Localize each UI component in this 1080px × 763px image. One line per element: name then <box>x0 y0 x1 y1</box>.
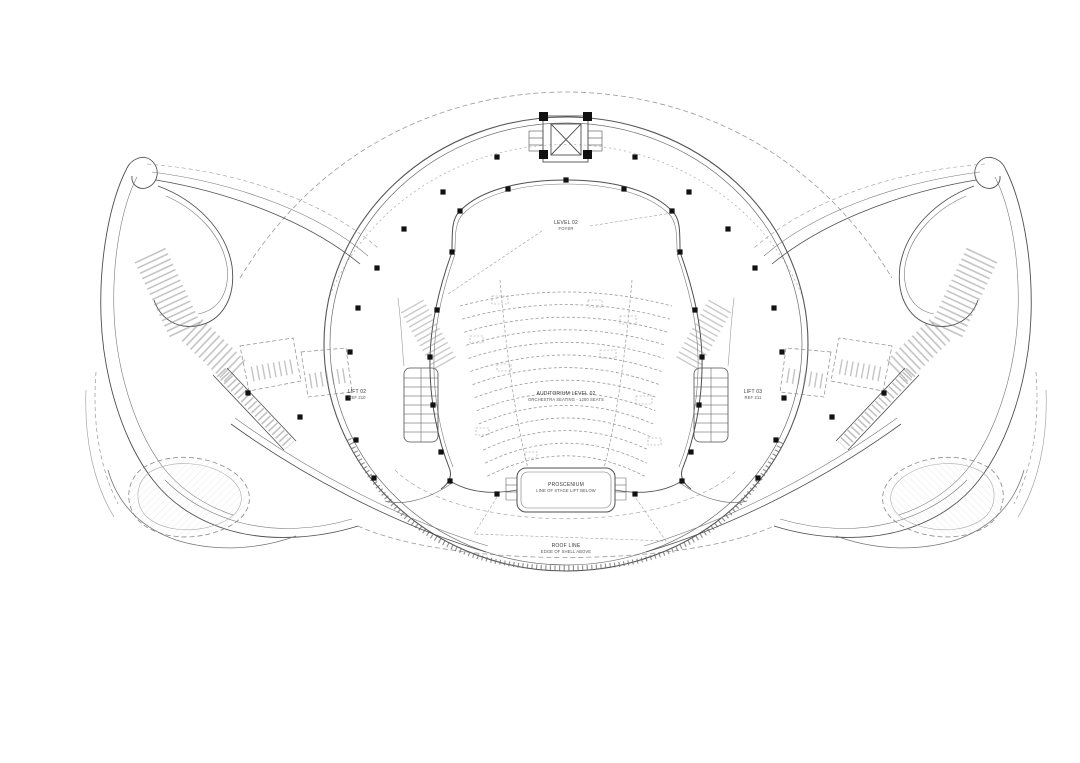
seat-row <box>483 431 649 451</box>
seating-step-box <box>525 452 537 458</box>
column-marker <box>347 349 352 354</box>
left-wing <box>86 157 517 552</box>
seat-row <box>468 342 663 358</box>
seating-step-box <box>476 428 489 435</box>
column-marker <box>494 491 499 496</box>
column-marker <box>621 186 626 191</box>
column-marker <box>755 475 760 480</box>
svg-text:ORCHESTRA SEATING - 1200 SEATS: ORCHESTRA SEATING - 1200 SEATS <box>528 397 604 402</box>
column-marker <box>679 478 684 483</box>
seating-step-box <box>636 396 652 404</box>
seat-row <box>466 330 665 346</box>
seating-step-box <box>492 296 508 304</box>
wing-stair-2 <box>192 330 236 372</box>
column-marker <box>355 305 360 310</box>
column-marker <box>669 208 674 213</box>
column-markers <box>245 154 886 496</box>
shaft-column-markers <box>539 112 592 159</box>
column-marker <box>699 354 704 359</box>
column-marker <box>440 189 445 194</box>
terrace-blob <box>108 457 296 548</box>
elevator-shaft <box>529 112 602 162</box>
seat-row <box>487 456 644 477</box>
column-marker <box>297 414 302 419</box>
seat-row <box>473 368 660 385</box>
seat-row <box>485 443 647 463</box>
column-marker <box>427 354 432 359</box>
column-marker <box>773 437 778 442</box>
seating-step-boxes <box>470 296 661 458</box>
svg-text:EDGE OF SHELL ABOVE: EDGE OF SHELL ABOVE <box>541 549 591 554</box>
column-marker <box>632 491 637 496</box>
auditorium-seating-rows <box>460 292 672 476</box>
column-marker <box>374 265 379 270</box>
auditorium-walls <box>452 180 680 252</box>
seat-row <box>462 305 670 320</box>
column-marker <box>457 208 462 213</box>
column-marker <box>686 189 691 194</box>
svg-text:FOYER: FOYER <box>559 226 574 231</box>
svg-text:LINE OF STAGE LIFT BELOW: LINE OF STAGE LIFT BELOW <box>536 488 596 493</box>
column-marker <box>434 307 439 312</box>
side-stair-box <box>398 298 446 442</box>
floor-plan-canvas: LEVEL 02 FOYER AUDITORIUM LEVEL 02 ORCHE… <box>0 0 1080 763</box>
column-marker <box>371 475 376 480</box>
column-marker <box>779 349 784 354</box>
column-marker <box>430 402 435 407</box>
column-marker <box>692 307 697 312</box>
wing-stair-1 <box>150 255 186 332</box>
column-marker <box>563 177 568 182</box>
seat-row <box>479 405 653 424</box>
column-marker <box>677 249 682 254</box>
column-marker <box>447 478 452 483</box>
column-marker <box>752 265 757 270</box>
column-marker <box>688 449 693 454</box>
column-marker <box>449 249 454 254</box>
column-marker <box>401 226 406 231</box>
right-wing <box>615 157 1046 552</box>
floor-plan-page: LEVEL 02 FOYER AUDITORIUM LEVEL 02 ORCHE… <box>0 0 1080 763</box>
column-marker <box>881 390 886 395</box>
column-marker <box>438 449 443 454</box>
seating-step-box <box>600 350 616 358</box>
column-marker <box>245 390 250 395</box>
seat-row <box>471 355 662 372</box>
auditorium-aisles <box>500 280 632 468</box>
seating-step-box <box>588 300 602 307</box>
column-marker <box>353 437 358 442</box>
column-marker <box>505 186 510 191</box>
column-marker <box>494 154 499 159</box>
wing-tip-curl <box>126 157 157 188</box>
column-marker <box>632 154 637 159</box>
seating-step-box <box>648 438 661 445</box>
seat-row <box>481 418 651 437</box>
column-marker <box>696 402 701 407</box>
svg-text:REF 211: REF 211 <box>745 395 762 400</box>
column-marker <box>829 414 834 419</box>
column-marker <box>725 226 730 231</box>
column-marker <box>781 395 786 400</box>
column-marker <box>771 305 776 310</box>
foyer-rooms <box>240 338 352 397</box>
svg-text:REF 210: REF 210 <box>348 395 366 400</box>
